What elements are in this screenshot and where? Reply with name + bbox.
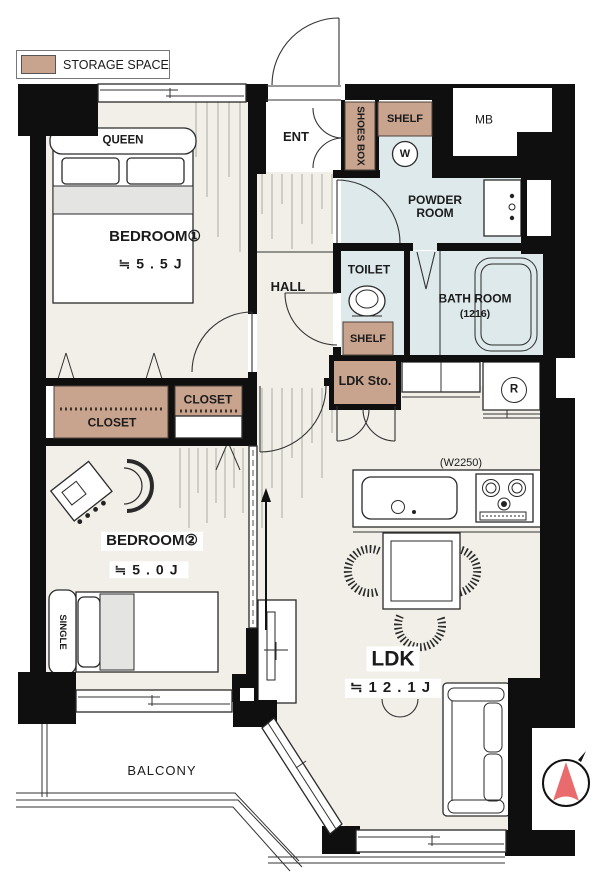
- bedroom2-label: BEDROOM②: [101, 532, 203, 551]
- ldk-size: ≒12.1J: [345, 679, 441, 698]
- washbasin-vanity: [484, 180, 521, 236]
- bathroom-label: BATH ROOM: [438, 292, 511, 305]
- toilet-fixture: [349, 286, 385, 316]
- shoes-box-label: SHOES BOX: [353, 105, 366, 167]
- bathroom-size: (1216): [460, 309, 490, 321]
- bedroom1-label: BEDROOM①: [109, 229, 201, 246]
- bedroom2-window: [76, 690, 232, 712]
- kitchen-counter: [353, 470, 543, 532]
- bedroom2-size: ≒5.0J: [110, 561, 189, 578]
- legend: STORAGE SPACE: [16, 50, 170, 79]
- single-bed: [49, 590, 218, 674]
- shelf-entrance-label: SHELF: [387, 113, 423, 125]
- floor-plan: STORAGE SPACE BEDROOM① ≒5.5J BEDROOM② ≒5…: [0, 0, 600, 872]
- ldk-label: LDK: [366, 646, 419, 671]
- meter-box-label: MB: [475, 113, 493, 126]
- single-bed-label: SINGLE: [57, 614, 67, 649]
- balcony-label: BALCONY: [127, 764, 196, 778]
- ent-label: ENT: [283, 130, 309, 144]
- sofa: [443, 683, 510, 816]
- ldk-storage-label: LDK Sto.: [339, 375, 392, 389]
- closet1-label: CLOSET: [88, 416, 137, 429]
- legend-label: STORAGE SPACE: [63, 58, 169, 72]
- bedroom1-window: [98, 84, 246, 102]
- stove: [476, 474, 533, 522]
- refrigerator-label: R: [510, 384, 518, 397]
- bedroom1-size: ≒5.5J: [119, 256, 188, 271]
- storage-swatch: [21, 55, 56, 74]
- shelf-toilet-label: SHELF: [350, 333, 386, 345]
- queen-bed: [50, 128, 196, 303]
- north-arrow-icon: [543, 751, 589, 806]
- kitchen-width-label: (W2250): [440, 457, 482, 469]
- hall-label: HALL: [271, 280, 306, 294]
- ldk-window: [356, 830, 506, 852]
- kitchen-sink: [362, 477, 457, 519]
- toilet-label: TOILET: [348, 263, 390, 276]
- washing-machine-label: W: [400, 148, 410, 160]
- closet2-label: CLOSET: [184, 393, 233, 406]
- closet-1: [54, 386, 168, 438]
- powder-room-label: POWDER ROOM: [395, 194, 475, 220]
- tv-board: [258, 600, 296, 703]
- entrance-door: [266, 18, 341, 100]
- pipe-space: [527, 180, 551, 236]
- queen-bed-label: QUEEN: [103, 135, 144, 148]
